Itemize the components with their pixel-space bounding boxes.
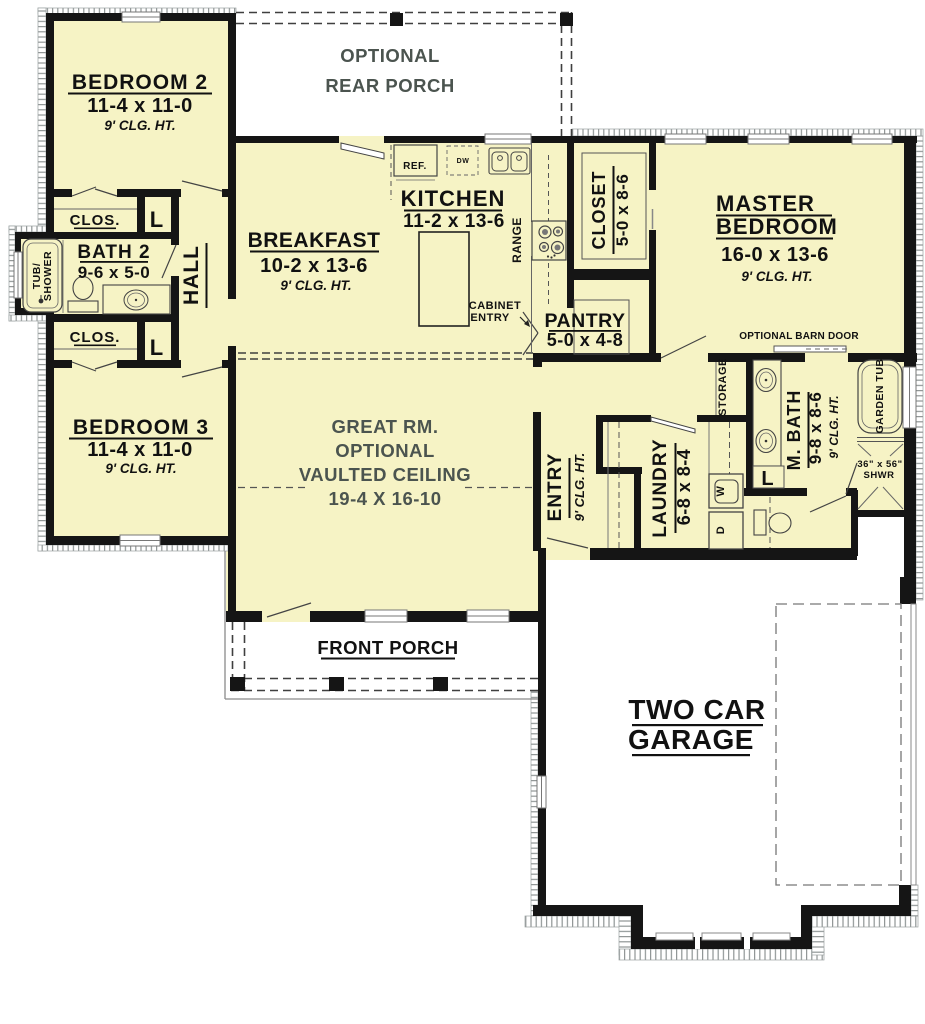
svg-text:9' CLG. HT.: 9' CLG. HT. [104, 118, 175, 133]
svg-text:9' CLG. HT.: 9' CLG. HT. [827, 395, 841, 458]
svg-text:REAR PORCH: REAR PORCH [325, 75, 454, 96]
svg-text:L: L [761, 468, 774, 490]
svg-text:CLOS.: CLOS. [70, 329, 121, 346]
svg-text:9-8 x 8-6: 9-8 x 8-6 [806, 392, 825, 465]
svg-text:CLOSET: CLOSET [589, 170, 609, 249]
svg-text:BREAKFAST: BREAKFAST [248, 229, 381, 252]
svg-text:OPTIONAL: OPTIONAL [335, 440, 435, 461]
svg-text:9' CLG. HT.: 9' CLG. HT. [741, 269, 812, 284]
svg-text:ENTRY: ENTRY [470, 312, 510, 324]
svg-text:DW: DW [457, 158, 470, 165]
svg-text:BEDROOM: BEDROOM [716, 214, 838, 239]
svg-text:REF.: REF. [403, 161, 427, 172]
svg-text:11-4 x 11-0: 11-4 x 11-0 [87, 439, 193, 461]
svg-text:9-6 x 5-0: 9-6 x 5-0 [78, 263, 151, 282]
svg-text:SHOWER: SHOWER [42, 251, 54, 301]
svg-text:GARDEN TUB: GARDEN TUB [874, 359, 886, 434]
svg-text:MASTER: MASTER [716, 191, 815, 216]
svg-text:CABINET: CABINET [469, 300, 521, 312]
svg-text:9' CLG. HT.: 9' CLG. HT. [572, 453, 587, 522]
svg-text:16-0 x 13-6: 16-0 x 13-6 [721, 244, 829, 266]
svg-text:RANGE: RANGE [510, 217, 524, 263]
svg-text:19-4 X 16-10: 19-4 X 16-10 [329, 488, 442, 509]
svg-text:ENTRY: ENTRY [545, 453, 566, 522]
svg-text:VAULTED CEILING: VAULTED CEILING [299, 464, 471, 485]
svg-text:OPTIONAL BARN DOOR: OPTIONAL BARN DOOR [739, 331, 859, 342]
svg-text:6-8 x 8-4: 6-8 x 8-4 [674, 449, 694, 526]
svg-text:KITCHEN: KITCHEN [401, 186, 506, 211]
svg-text:LAUNDRY: LAUNDRY [650, 438, 671, 537]
svg-text:11-4 x 11-0: 11-4 x 11-0 [87, 95, 193, 117]
svg-text:11-2 x 13-6: 11-2 x 13-6 [403, 211, 505, 232]
svg-text:D: D [715, 526, 727, 534]
svg-text:BATH 2: BATH 2 [77, 242, 150, 263]
svg-text:5-0 x 8-6: 5-0 x 8-6 [613, 174, 632, 247]
svg-text:36" x 56": 36" x 56" [857, 459, 902, 470]
svg-text:9' CLG. HT.: 9' CLG. HT. [105, 461, 176, 476]
svg-text:W: W [715, 485, 727, 496]
svg-text:9' CLG. HT.: 9' CLG. HT. [280, 278, 351, 293]
svg-text:CLOS.: CLOS. [70, 212, 121, 229]
svg-text:5-0 x 4-8: 5-0 x 4-8 [547, 330, 624, 350]
svg-text:PANTRY: PANTRY [545, 310, 626, 332]
svg-text:BEDROOM 2: BEDROOM 2 [72, 71, 208, 94]
svg-text:10-2 x 13-6: 10-2 x 13-6 [260, 255, 368, 277]
svg-text:HALL: HALL [180, 245, 203, 305]
svg-text:L: L [150, 335, 164, 360]
svg-text:L: L [150, 207, 164, 232]
svg-text:SHWR: SHWR [863, 470, 894, 481]
svg-text:BEDROOM 3: BEDROOM 3 [73, 416, 209, 439]
svg-text:GREAT RM.: GREAT RM. [332, 416, 439, 437]
svg-text:FRONT PORCH: FRONT PORCH [317, 637, 458, 658]
svg-text:STORAGE: STORAGE [717, 358, 729, 416]
svg-text:TWO CAR: TWO CAR [628, 694, 765, 725]
svg-text:M. BATH: M. BATH [784, 390, 804, 471]
svg-text:GARAGE: GARAGE [628, 724, 754, 755]
svg-text:OPTIONAL: OPTIONAL [340, 45, 440, 66]
